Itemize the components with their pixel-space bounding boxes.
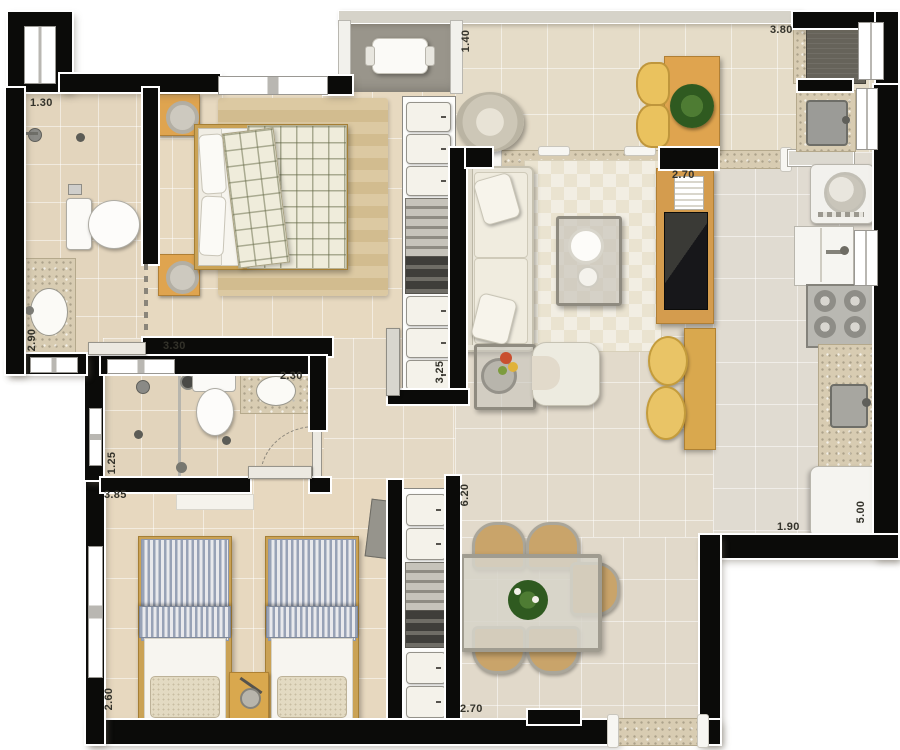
burner [844,290,866,312]
wall-right [874,85,898,558]
bathroom1-door-opening [144,264,148,346]
wall-bathroom1-divider [143,88,158,264]
closet-drawer [406,102,451,132]
window-bedroom1-top [218,76,328,95]
burner [814,316,836,338]
entry-door-jamb [697,714,709,748]
closet-drawer [406,686,446,718]
closet-hanging-rail [405,198,453,258]
window-kitchen-right [854,230,878,286]
dim-bedroom2-width: 3.85 [104,489,127,501]
tv [664,212,708,310]
sliding-door-panel [538,146,570,156]
dim-tv-wall: 2.70 [672,169,695,181]
shower-glass-partition [178,374,181,476]
wall-bathroom2-right [310,356,326,430]
toilet-paper-holder [68,184,82,195]
closet-drawer [406,134,451,164]
wall-living-divider [450,148,466,404]
sink-divider [820,228,822,282]
window-top-left [24,26,56,84]
faucet [842,116,850,124]
toilet-bowl [196,388,234,436]
bed-pillow [198,195,226,256]
closet-drawer [406,494,446,526]
floor-drain [222,436,231,445]
closet-drawer [406,166,451,196]
shower-arm [24,132,38,135]
wall-closet2-left [388,480,402,718]
wall-right-lower [700,535,720,744]
plant-flowers [514,588,521,595]
wall-top-b [324,76,352,94]
dim-dining-width: 2.70 [460,703,483,715]
floor-plan: 1.30 2.90 3.30 1.40 3.80 2.70 3.25 2.30 … [0,0,900,750]
dim-bedroom2-depth: 2.60 [103,679,115,719]
plant-centerpiece [508,580,548,620]
wall-bedroom2-top-cap [310,478,330,492]
breakfast-bar [684,328,716,450]
plant [670,84,714,128]
terrace-chair [636,104,670,148]
dim-closet1-length: 3.25 [434,352,446,392]
dim-bathroom1-width: 1.30 [30,97,53,109]
single-bed-blanket-fold [139,606,231,638]
wall-closet2-right [446,476,460,718]
wall-kitchen-bottom [700,535,898,558]
terrace-railing [338,10,802,24]
window-service-top [858,22,884,80]
washer-drum [824,172,866,214]
kitchen-sink-cabinet [794,226,854,286]
wall-closet1-bottom [388,390,468,404]
armchair-seat-notch [532,356,560,390]
closet-drawer [406,296,451,326]
closet-dark-clothes [405,610,447,648]
closet-shelves [405,562,447,612]
decor-dish [577,266,599,288]
wall-top-a [60,74,220,92]
faucet [25,306,34,315]
closet-drawer [406,528,446,560]
closet-drawer [406,652,446,684]
dim-bathroom2-depth: 1.25 [106,443,118,483]
window-service-right [856,88,878,150]
balcony-bench-arm-right [425,46,435,66]
floor-drain [134,430,143,439]
window-bedroom2-left [88,546,103,678]
entry-door-jamb [607,714,619,748]
flowers [508,362,518,372]
single-bed-pillow [150,676,220,718]
burner [814,290,836,312]
dim-living-length: 6.20 [459,475,471,515]
washer-controls [818,212,864,217]
balcony-bench [372,38,428,74]
book-stack [674,176,704,210]
dim-kitchen-length: 5.00 [855,492,867,532]
bathroom1-door-leaf [88,342,146,355]
dim-bedroom1-width: 3.30 [163,340,186,352]
dim-kitchen-width: 1.90 [777,521,800,533]
wall-left-upper [6,88,24,374]
window-corridor [89,408,102,466]
dim-bathroom2-width: 2.30 [280,370,303,382]
wall-bottom-notch [528,710,580,724]
dim-balcony-depth: 1.40 [460,21,472,61]
wall-tv-column [660,148,718,169]
terrace-chair [636,62,670,106]
wall-living-divider-stub [466,148,492,167]
wall-shelf [176,494,254,510]
bedroom2-door-leaf [248,466,312,479]
counter-sink [830,384,868,428]
bar-stool [648,336,688,386]
plant-flowers [532,596,539,603]
decor-bowl [568,228,604,264]
faucet [862,398,871,407]
dim-terrace-width: 3.80 [770,24,793,36]
faucet-base [840,246,849,255]
entry-threshold [616,718,702,746]
service-dark-counter [806,22,866,84]
shower-knob [176,462,187,473]
single-bed-pillow [277,676,347,718]
shower-head [136,380,150,394]
bar-stool [646,386,686,440]
pouf [456,92,524,152]
closet-dark-clothes [405,256,453,294]
flowers [498,366,507,375]
balcony-bench-arm-left [365,46,375,66]
burner [844,316,866,338]
wall-service-divider [798,80,852,91]
window-bathroom2 [107,359,175,374]
terrace-halfwall-2 [716,150,790,169]
table-lamp [240,688,261,709]
bedroom1-door-leaf [386,328,400,396]
dim-bathroom1-depth: 2.90 [26,320,38,360]
floor-drain [76,133,85,142]
shower-head [28,128,42,142]
single-bed-blanket-fold [266,606,358,638]
toilet-bowl [88,200,140,249]
laundry-tank [806,100,848,146]
